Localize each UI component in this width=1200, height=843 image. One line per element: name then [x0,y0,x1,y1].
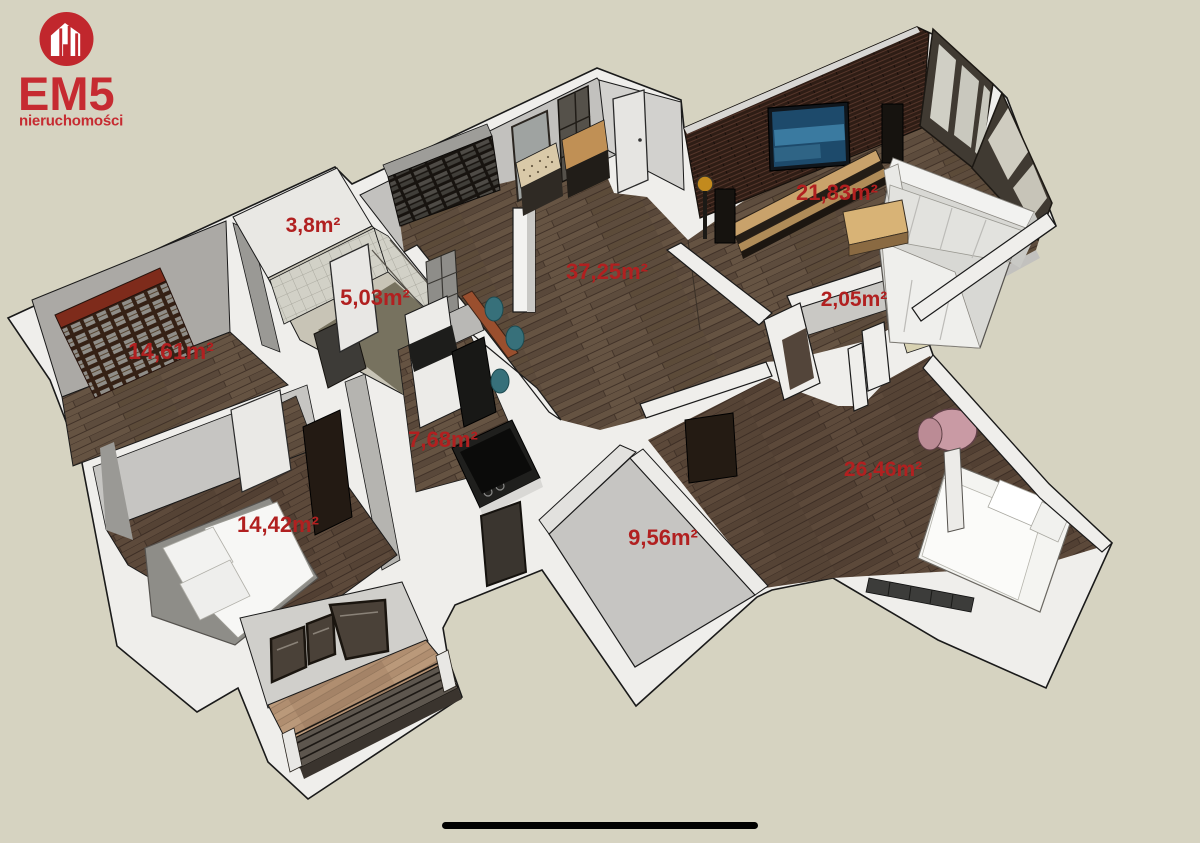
svg-text:5,03m²: 5,03m² [340,285,410,310]
svg-text:26,46m²: 26,46m² [844,458,922,481]
svg-text:37,25m²: 37,25m² [566,259,648,284]
svg-text:nieruchomości: nieruchomości [19,113,123,130]
svg-text:14,61m²: 14,61m² [128,338,214,364]
svg-text:14,42m²: 14,42m² [237,512,319,537]
svg-text:9,56m²: 9,56m² [628,525,698,550]
svg-text:3,8m²: 3,8m² [286,214,341,237]
svg-text:21,83m²: 21,83m² [796,180,878,205]
svg-text:2,05m²: 2,05m² [821,288,888,311]
svg-text:7,68m²: 7,68m² [408,427,478,452]
